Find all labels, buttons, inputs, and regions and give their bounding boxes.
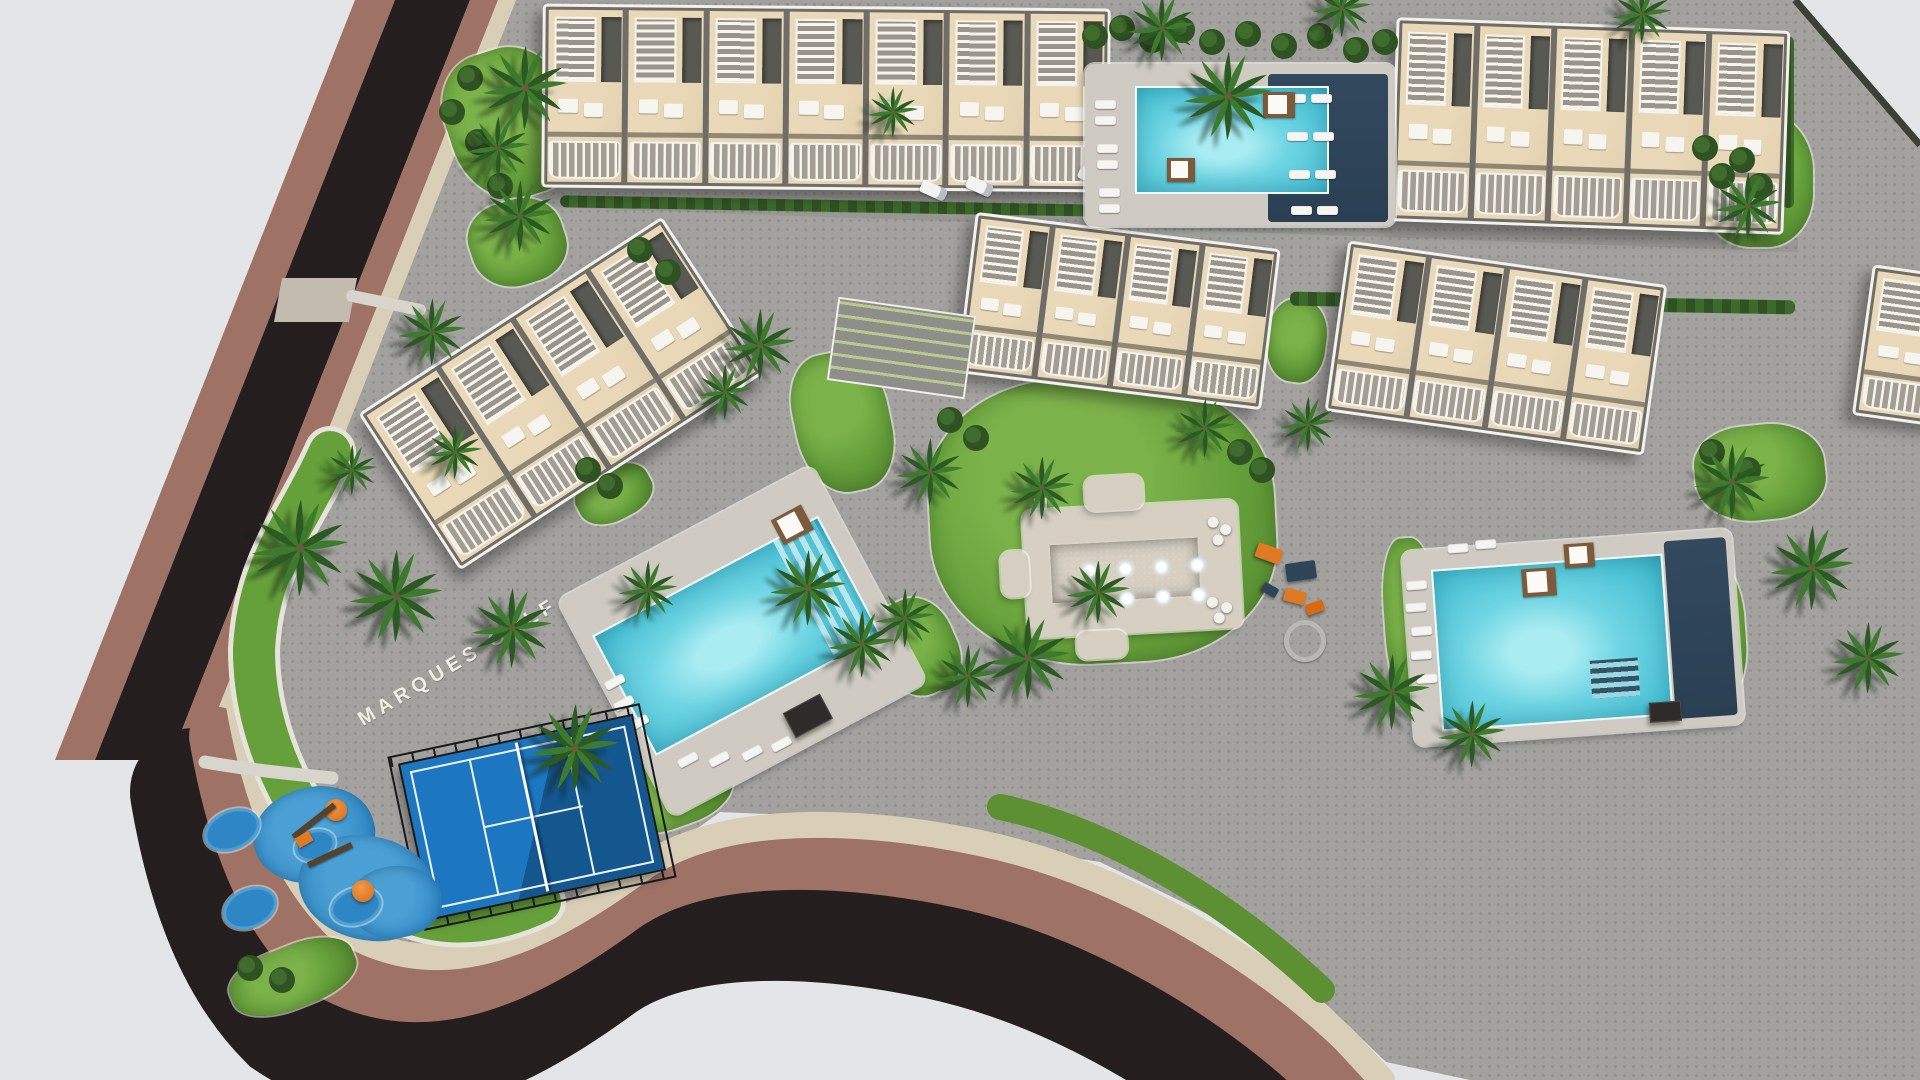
bush-highlight [1229, 441, 1245, 457]
palm-tree [1354, 654, 1430, 731]
site-plan-render: MARQUES GOLF [0, 0, 1920, 1080]
bush-highlight [629, 239, 645, 255]
bush-highlight [1701, 441, 1717, 457]
palm-tree [619, 560, 678, 620]
palm-tree [327, 444, 377, 495]
palm-tree [1176, 398, 1235, 458]
palm-tree [1011, 456, 1074, 520]
palm-tree [472, 588, 552, 669]
palm-tree [770, 550, 846, 627]
bush-highlight [271, 969, 287, 985]
bush-highlight [1711, 165, 1727, 181]
bush-highlight [657, 261, 673, 277]
bush-highlight [1237, 23, 1253, 39]
palm-tree [986, 615, 1070, 700]
bushes [237, 15, 1773, 993]
bush-highlight [599, 475, 615, 491]
bush-highlight [441, 101, 457, 117]
bush-highlight [939, 409, 955, 425]
bush-highlight [1345, 39, 1361, 55]
palm-tree [896, 438, 963, 506]
palm-tree [483, 45, 567, 130]
bush-highlight [1694, 137, 1710, 153]
bush-highlight [489, 175, 505, 191]
palm-trees [252, 0, 1904, 793]
bush-highlight [577, 459, 593, 475]
palm-tree [937, 644, 1000, 708]
bush-highlight [459, 67, 475, 83]
palm-tree [350, 549, 442, 643]
palm-tree [1832, 622, 1903, 694]
palm-tree [428, 424, 483, 479]
palm-tree [398, 298, 465, 366]
palm-tree [698, 364, 753, 419]
palm-tree [1281, 396, 1336, 451]
palm-tree [252, 499, 349, 597]
palm-tree [868, 86, 918, 137]
bush-highlight [239, 957, 255, 973]
bush-highlight [1309, 25, 1325, 41]
bush-highlight [1084, 25, 1100, 41]
bush-highlight [1111, 17, 1127, 33]
palm-tree [724, 309, 795, 381]
bush-highlight [1273, 35, 1289, 51]
bush-highlight [965, 427, 981, 443]
bush-highlight [1731, 149, 1747, 165]
palm-tree [1770, 525, 1854, 610]
bush-highlight [1251, 459, 1267, 475]
palm-tree [1184, 51, 1272, 140]
bush-highlight [1374, 31, 1390, 47]
palm-tree [531, 703, 619, 792]
palm-tree [1438, 700, 1505, 768]
palm-tree [1067, 560, 1130, 624]
palm-tree [1613, 0, 1672, 44]
flora-layer [0, 0, 1920, 1080]
bush-highlight [1201, 31, 1217, 47]
